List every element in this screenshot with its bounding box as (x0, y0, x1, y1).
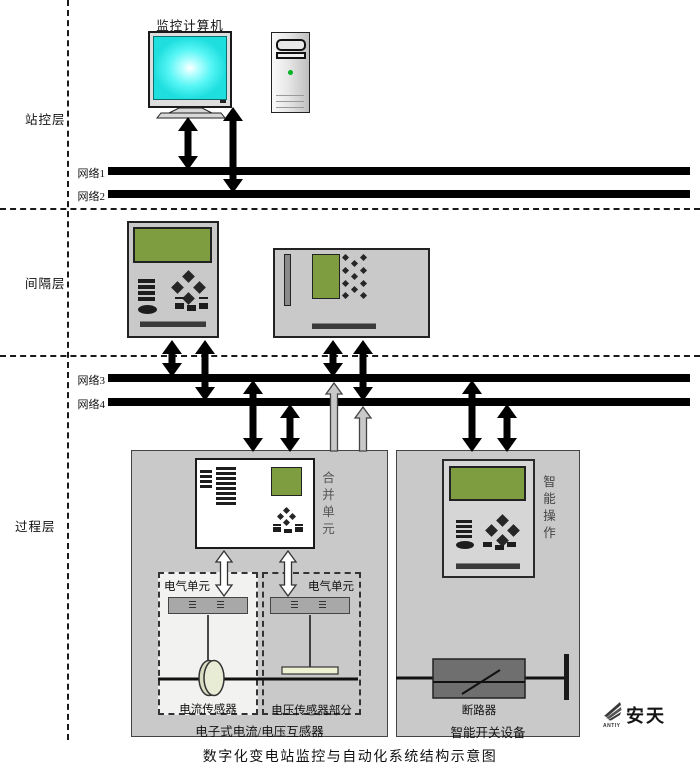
network3-bus (108, 374, 690, 382)
network3-label: 网络3 (71, 372, 105, 388)
arrow-monitor-network1 (178, 117, 198, 170)
power-led (288, 70, 293, 75)
arrow-network3-transformer-box (243, 380, 263, 452)
device2-vertical-slot (284, 254, 291, 306)
device1-button (187, 305, 196, 311)
arrow-pc-network2 (223, 107, 243, 193)
merging-unit-label: 合并单元 (321, 470, 336, 538)
arrow-merging-unit-network3 (326, 383, 342, 451)
layer-label-process: 过程层 (15, 516, 56, 535)
electrical-unit-right-module (270, 597, 350, 614)
device1-dial (138, 305, 157, 314)
bay-protection-device-2 (273, 248, 430, 338)
arrow-merging-unit-network4 (355, 407, 371, 451)
network2-label: 网络2 (71, 188, 105, 204)
current-sensor-label: 电流传感器 (158, 701, 258, 717)
arrow-device1-network4 (195, 340, 215, 401)
arrow-network4-transformer-box (280, 404, 300, 452)
merging-unit-led-col2 (216, 467, 236, 505)
pc-tower (271, 32, 310, 113)
arrow-network4-switchgear-box (497, 404, 517, 452)
network4-bus (108, 398, 690, 406)
arrow-device1-network3 (162, 340, 182, 377)
layer-label-bay: 间隔层 (25, 273, 66, 292)
voltage-sensor-label: 电压传感器部分 (262, 702, 361, 718)
device1-button (199, 297, 208, 299)
electrical-unit-left-label: 电气单元 (164, 578, 210, 594)
smart-operation-device (442, 459, 535, 578)
device1-key-right (193, 281, 206, 294)
antiy-name-text: 安天 (626, 702, 666, 728)
device1-lcd-screen (133, 227, 212, 263)
vent-line (276, 95, 304, 96)
monitor-power-button (220, 100, 226, 103)
bay-process-boundary-line (0, 355, 700, 357)
network1-bus (108, 167, 690, 175)
merging-unit-screen (271, 467, 302, 496)
smart-operation-dial (456, 541, 474, 549)
layer-label-station: 站控层 (25, 109, 66, 128)
device1-button (199, 303, 208, 309)
monitor-stand-base (157, 113, 225, 118)
antiy-sub-text: ANTIY (603, 723, 621, 729)
station-bay-boundary-line (0, 208, 700, 210)
device1-button (175, 297, 184, 299)
network2-bus (108, 190, 690, 198)
device1-key-left (171, 281, 184, 294)
merging-unit-led-col1 (200, 470, 212, 488)
crt-monitor (148, 31, 232, 108)
device2-lcd-screen (312, 254, 340, 299)
monitor-screen (153, 36, 227, 100)
smart-operation-screen (449, 466, 526, 501)
smart-operation-led-bars (456, 520, 472, 538)
diagram-caption: 数字化变电站监控与自动化系统结构示意图 (150, 746, 550, 766)
diagram-canvas: 站控层 间隔层 过程层 网络1 网络2 网络3 网络4 监控计算机 (0, 0, 700, 770)
vent-line (276, 101, 304, 102)
arrow-network3-switchgear-box (462, 380, 482, 452)
switchgear-caption: 智能开关设备 (396, 722, 580, 741)
bay-protection-device-1 (127, 221, 219, 338)
smart-operation-label: 智能操作 (542, 474, 557, 542)
transformer-caption: 电子式电流/电压互感器 (131, 721, 388, 740)
vent-line (276, 107, 304, 108)
layer-boundary-vertical-line (67, 0, 69, 740)
breaker-label: 断路器 (433, 702, 525, 718)
monitor-stand-neck (167, 108, 214, 114)
device1-card-slot (140, 321, 206, 327)
device1-button (175, 303, 184, 309)
arrow-device2-network3 (323, 340, 343, 377)
floppy-slot (276, 52, 306, 59)
device1-led-bars (138, 279, 155, 301)
cd-drive (276, 39, 306, 51)
network1-label: 网络1 (71, 165, 105, 181)
electrical-unit-left-module (168, 597, 248, 614)
antiy-logo: ANTIY 安天 (602, 701, 692, 733)
antiy-feather-icon (602, 701, 624, 724)
merging-unit-device (195, 458, 315, 549)
electrical-unit-right-label: 电气单元 (308, 578, 354, 594)
arrow-device2-network4 (353, 340, 373, 401)
network4-label: 网络4 (71, 396, 105, 412)
smart-operation-card-slot (456, 563, 520, 569)
device1-key-up (182, 270, 195, 283)
device2-card-slot (312, 323, 376, 329)
